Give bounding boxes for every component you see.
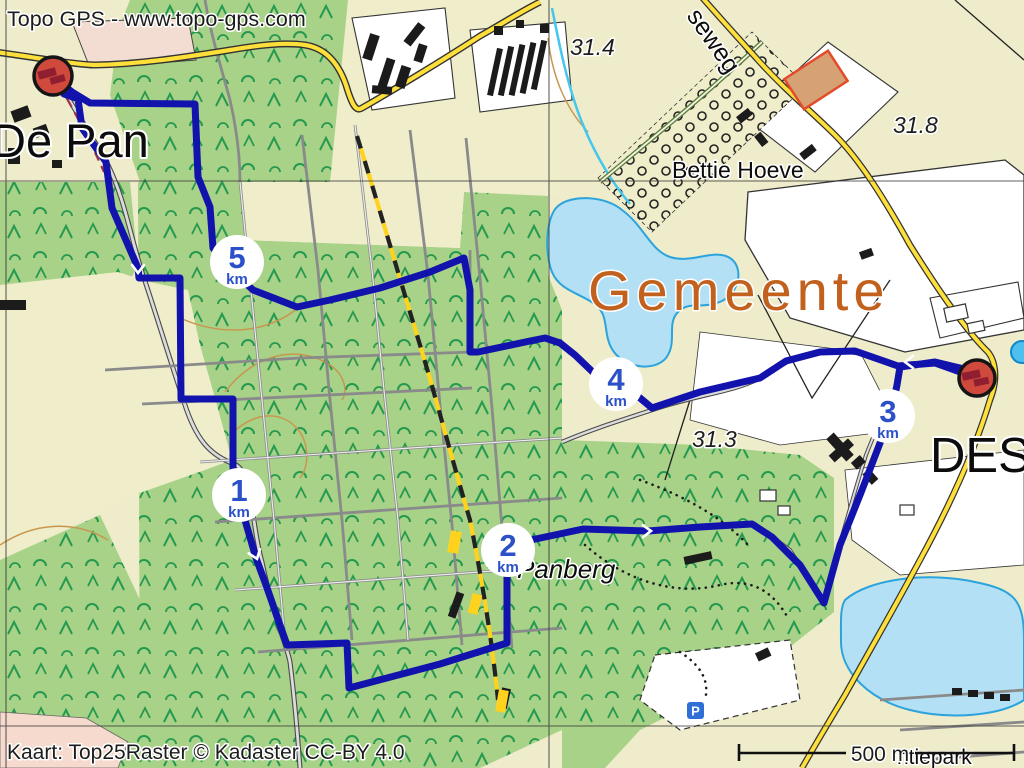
map-attribution: Kaart: Top25Raster © Kadaster CC-BY 4.0 xyxy=(7,741,405,764)
km-unit: km xyxy=(497,559,519,576)
topo-gps-app: P De Pan Gemeente Bettie Hoeve Panberg s… xyxy=(0,0,1024,768)
km-marker-badge[interactable]: 5 km xyxy=(210,235,264,289)
km-unit: km xyxy=(877,425,899,442)
place-label-de-pan: De Pan xyxy=(0,114,149,167)
parking-letter: P xyxy=(691,704,700,719)
km-unit: km xyxy=(605,393,627,410)
km-marker-badge[interactable]: 2 km xyxy=(481,523,535,577)
parking-icon: P xyxy=(687,702,704,719)
scale-label: 500 m xyxy=(851,743,909,766)
app-brand-text: Topo GPS - www.topo-gps.com xyxy=(7,7,306,31)
waypoint-marker-start[interactable] xyxy=(34,57,72,95)
km-unit: km xyxy=(226,271,248,288)
km-value: 4 xyxy=(607,362,625,397)
km-value: 2 xyxy=(499,528,516,563)
waypoint-marker-edge[interactable] xyxy=(1011,341,1024,363)
km-marker-badge[interactable]: 1 km xyxy=(212,468,266,522)
place-label-right: DES xyxy=(930,429,1024,483)
km-value: 1 xyxy=(230,473,247,508)
waypoint-marker-end[interactable] xyxy=(959,360,995,396)
municipality-label: Gemeente xyxy=(588,259,890,322)
km-marker-badge[interactable]: 4 km xyxy=(589,357,643,411)
elevation-label: 31.4 xyxy=(570,34,615,60)
km-value: 5 xyxy=(228,240,245,275)
farm-label: Bettie Hoeve xyxy=(672,157,804,183)
km-unit: km xyxy=(228,504,250,521)
map-canvas[interactable]: P De Pan Gemeente Bettie Hoeve Panberg s… xyxy=(0,0,1024,768)
elevation-label: 31.3 xyxy=(692,426,737,452)
km-marker-badge[interactable]: 3 km xyxy=(861,389,915,443)
km-value: 3 xyxy=(879,394,896,429)
elevation-label: 31.8 xyxy=(893,112,938,138)
